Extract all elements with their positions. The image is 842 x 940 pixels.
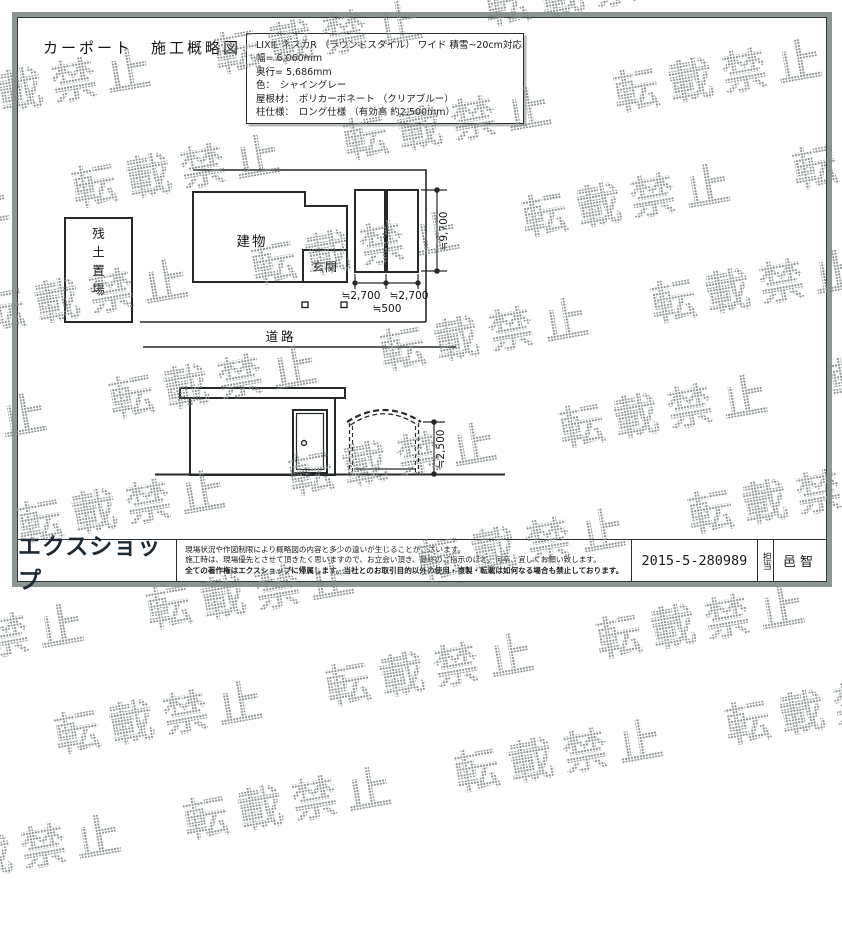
dim-depth-dot-bottom (435, 269, 440, 274)
road-label: 道路 (265, 329, 296, 344)
soil-area-label: 残土置場 (88, 227, 107, 301)
carport-bay-left (355, 190, 385, 272)
dim-depth-label: ≒9,700 (438, 212, 450, 251)
dim-width-dot-left (353, 281, 357, 285)
page-title: カーポート 施工概略図 (43, 37, 241, 58)
dim-width-left-label: ≒2,700 (342, 290, 381, 302)
carport-bay-right (387, 190, 418, 272)
dim-width-right-label: ≒2,700 (390, 290, 429, 302)
dim-height-label: ≒2,500 (435, 430, 447, 469)
roof-slab (180, 388, 345, 398)
spec-line-post: 柱仕様： ロング仕様 （有効高 約2,500mm） (256, 106, 514, 119)
spec-line-width: 幅= 6,060mm (256, 52, 514, 65)
spec-line-roof: 屋根材： ポリカーボネート （クリアブルー） (256, 93, 514, 106)
door-outer (293, 410, 327, 473)
spec-line-color: 色： シャイングレー (256, 79, 514, 92)
entrance-label: 玄関 (312, 259, 338, 274)
dim-depth-dot-top (435, 188, 440, 193)
spec-line-depth: 奥行= 5,686mm (256, 66, 514, 79)
spec-box: LIXIL ネスカR （ラウンドスタイル） ワイド 積雪~20cm対応 幅= 6… (246, 33, 524, 124)
dim-setback-label: ≒500 (373, 303, 402, 315)
spec-line-product: LIXIL ネスカR （ラウンドスタイル） ワイド 積雪~20cm対応 (256, 39, 514, 52)
watermark-text: 転載禁止 転載禁止 転載禁止 転載禁止 転載禁止 転載禁止 (0, 583, 842, 923)
post-marker-left (302, 302, 308, 308)
dim-width-dot-mid (384, 281, 388, 285)
post-marker-right (341, 302, 347, 308)
dim-width-dot-right (416, 281, 420, 285)
building-label: 建物 (237, 234, 268, 250)
dim-height-dot-top (432, 420, 437, 425)
dim-height-dot-bottom (432, 472, 437, 477)
